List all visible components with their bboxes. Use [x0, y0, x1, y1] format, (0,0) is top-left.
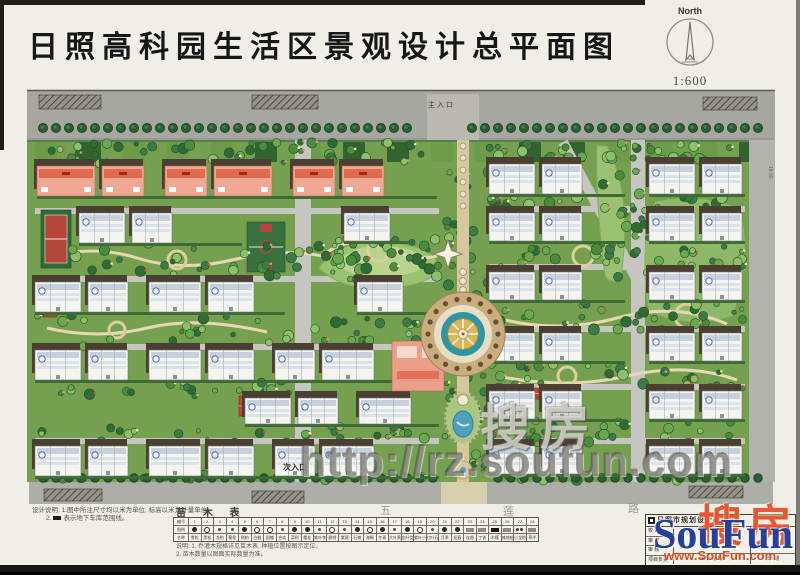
plant-table-column: 19紫叶小檗	[414, 518, 427, 541]
plant-table-cell	[202, 526, 214, 534]
road-name-char: 五	[380, 502, 391, 518]
scanned-plan-sheet: 日照高科园生活区景观设计总平面图 North 1:600 18.00 主入口 次…	[0, 0, 800, 575]
plant-table-cell: 大叶黄杨	[389, 534, 401, 541]
plant-symbol-icon	[204, 527, 210, 533]
plant-table-cell: 蜀桧	[227, 534, 239, 541]
plant-table-column: 15海桐	[364, 518, 377, 541]
plant-table-column: 10樱花	[302, 518, 315, 541]
plant-table-column: 24丁香	[477, 518, 490, 541]
plant-table-cell: 8	[277, 518, 289, 526]
plant-table-cell: 红叶石楠	[427, 534, 439, 541]
plant-table-cell: 25	[489, 518, 501, 526]
plant-table-column: 7国槐	[264, 518, 277, 541]
plant-symbol-icon	[367, 527, 373, 533]
plant-table-cell	[314, 526, 326, 534]
plant-table-cell	[489, 526, 501, 534]
plant-table-cell: 15	[364, 518, 376, 526]
plant-table-cell: 栾树	[289, 534, 301, 541]
plant-table-cell: 27	[514, 518, 526, 526]
plant-table-cell: 侧柏	[239, 534, 251, 541]
plant-table-cell: 白蜡	[252, 534, 264, 541]
plant-table-column: 21月季	[439, 518, 452, 541]
residential-building-row	[32, 275, 285, 315]
plant-table-cell: 紫薇	[339, 534, 351, 541]
plant-table-notes: 说明: 1. 乔灌木规格详见苗木表, 种植位置按图示定位。 2. 苗木数量以图面…	[176, 544, 321, 559]
plant-table-cell: 紫叶李	[314, 534, 326, 541]
plant-symbol-icon	[466, 528, 474, 532]
plant-symbol-icon	[267, 527, 273, 533]
plant-table-column: 28草坪	[527, 518, 539, 541]
plant-table-column: 6白蜡	[252, 518, 265, 541]
road-name-char: 路	[628, 500, 639, 516]
plant-table-column: 3龙柏	[214, 518, 227, 541]
plant-table-cell: 石楠	[352, 534, 364, 541]
plant-table-cell	[389, 526, 401, 534]
plant-symbol-icon	[343, 528, 346, 531]
plant-symbol-icon	[455, 527, 460, 532]
plant-symbol-icon	[405, 527, 410, 532]
plant-table-cell: 雪松	[189, 534, 201, 541]
scale-label: 1:600	[658, 73, 722, 89]
plant-table-cell: 草坪	[527, 534, 539, 541]
plant-symbol-icon	[292, 527, 297, 532]
plant-table-cell: 6	[252, 518, 264, 526]
plant-table-cell	[302, 526, 314, 534]
plant-table-cell: 20	[427, 518, 439, 526]
plant-table-cell: 11	[314, 518, 326, 526]
plant-table-cell: 碧桃	[327, 534, 339, 541]
plant-table-cell: 迎春	[452, 534, 464, 541]
plant-table-column: 1雪松	[189, 518, 202, 541]
plant-table-cell	[414, 526, 426, 534]
plant-table-cell	[439, 526, 451, 534]
plant-table-cell	[527, 526, 539, 534]
plant-symbol-icon	[417, 527, 423, 533]
plant-table-cell: 金叶女贞	[402, 534, 414, 541]
plant-table-cell	[452, 526, 464, 534]
plant-table-cell: 17	[389, 518, 401, 526]
plant-symbol-icon	[242, 527, 247, 532]
plant-table-cell: 龙柏	[214, 534, 226, 541]
plant-table-cell: 23	[464, 518, 476, 526]
plant-table-column: 26铺地柏	[502, 518, 515, 541]
plant-table-cell	[502, 526, 514, 534]
plant-table-cell: 木槿	[489, 534, 501, 541]
plant-table-cell: 16	[377, 518, 389, 526]
plant-table-cell	[239, 526, 251, 534]
central-plaza	[421, 292, 505, 376]
plant-symbol-icon	[305, 527, 310, 532]
plant-table-column: 20红叶石楠	[427, 518, 440, 541]
plant-table-cell	[227, 526, 239, 534]
edge-dimension-label: 18.00	[767, 166, 773, 179]
plant-symbol-icon	[491, 528, 499, 532]
plant-table-cell: 编号	[174, 518, 188, 526]
plant-table-cell	[427, 526, 439, 534]
road-name-char: 莲	[503, 503, 514, 519]
plant-table-cell: 4	[227, 518, 239, 526]
plant-table-cell: 小龙柏	[514, 534, 526, 541]
plant-table-cell	[477, 526, 489, 534]
plant-table-column: 14石楠	[352, 518, 365, 541]
plant-table-cell: 合欢	[277, 534, 289, 541]
soufun-logo-site: www.SouFun.com	[664, 548, 776, 563]
plant-symbol-icon	[231, 528, 234, 531]
plant-table-cell: 18	[402, 518, 414, 526]
plant-table-column: 9栾树	[289, 518, 302, 541]
plant-table-cell: 12	[327, 518, 339, 526]
main-entrance-label: 主入口	[428, 100, 455, 110]
plant-symbol-icon	[503, 528, 511, 532]
plant-table-cell: 图例	[174, 526, 188, 534]
plant-symbol-icon	[355, 527, 360, 532]
plant-table-cell: 樱花	[302, 534, 314, 541]
plant-table-cell: 2	[202, 518, 214, 526]
plant-symbol-icon	[318, 528, 321, 531]
plant-table-column: 27小龙柏	[514, 518, 527, 541]
plant-symbol-icon	[528, 528, 536, 532]
plant-table-cell: 连翘	[464, 534, 476, 541]
plant-table-column: 16冬青	[377, 518, 390, 541]
plant-table-cell: 28	[527, 518, 539, 526]
plant-table-cell: 黑松	[202, 534, 214, 541]
plant-symbol-icon	[478, 528, 486, 532]
north-label: North	[658, 6, 722, 16]
plant-table-column: 2黑松	[202, 518, 215, 541]
plant-table-cell: 10	[302, 518, 314, 526]
north-arrow-icon	[658, 16, 722, 68]
plant-symbol-icon	[218, 528, 221, 531]
plant-table-cell	[264, 526, 276, 534]
plant-table-cell	[514, 526, 526, 534]
scan-border	[0, 0, 645, 5]
plant-table-cell	[402, 526, 414, 534]
plant-table-column: 13紫薇	[339, 518, 352, 541]
plant-table-cell: 冬青	[377, 534, 389, 541]
plant-table-cell: 14	[352, 518, 364, 526]
scan-border	[796, 0, 800, 575]
plant-table-cell	[464, 526, 476, 534]
plant-table-cell	[289, 526, 301, 534]
plant-table-column: 18金叶女贞	[402, 518, 415, 541]
plant-symbol-icon	[281, 528, 284, 531]
plant-table-cell: 3	[214, 518, 226, 526]
plant-table-column: 8合欢	[277, 518, 290, 541]
plant-note-line: 2. 苗木数量以图面实际数量为准。	[176, 552, 321, 560]
plant-table-cell: 9	[289, 518, 301, 526]
plant-table-column: 编号图例名称	[174, 518, 189, 541]
plant-table-cell: 22	[452, 518, 464, 526]
plant-symbol-icon	[192, 527, 197, 532]
plant-table-cell	[214, 526, 226, 534]
plant-table-cell: 1	[189, 518, 201, 526]
plant-note-line: 说明: 1. 乔灌木规格详见苗木表, 种植位置按图示定位。	[176, 544, 321, 552]
plant-table-cell: 7	[264, 518, 276, 526]
plant-table-cell: 19	[414, 518, 426, 526]
plant-table-cell	[189, 526, 201, 534]
plant-symbol-icon	[516, 528, 519, 531]
plant-symbol-icon	[254, 527, 260, 533]
plant-table-cell: 丁香	[477, 534, 489, 541]
plant-table-column: 22迎春	[452, 518, 465, 541]
plant-table-cell: 5	[239, 518, 251, 526]
plant-table-cell: 紫叶小檗	[414, 534, 426, 541]
plant-table-cell: 名称	[174, 534, 188, 541]
plant-table-cell	[364, 526, 376, 534]
plant-symbol-icon	[380, 527, 385, 532]
plant-table-cell	[339, 526, 351, 534]
plant-symbol-icon	[329, 527, 335, 533]
plant-table-cell	[277, 526, 289, 534]
plant-symbol-icon	[393, 528, 396, 531]
page-title: 日照高科园生活区景观设计总平面图	[28, 22, 620, 66]
plant-table-column: 5侧柏	[239, 518, 252, 541]
plant-symbol-icon	[442, 527, 447, 532]
plant-table-cell: 国槐	[264, 534, 276, 541]
plant-table-cell: 21	[439, 518, 451, 526]
plant-table-column: 25木槿	[489, 518, 502, 541]
plant-table-cell: 海桐	[364, 534, 376, 541]
plant-table-cell	[352, 526, 364, 534]
plant-table-cell: 26	[502, 518, 514, 526]
plant-table-column: 23连翘	[464, 518, 477, 541]
north-arrow: North 1:600	[658, 6, 722, 89]
plant-table-column: 17大叶黄杨	[389, 518, 402, 541]
plant-table-column: 11紫叶李	[314, 518, 327, 541]
plant-table-cell: 月季	[439, 534, 451, 541]
plant-table: 编号图例名称1雪松2黑松3龙柏4蜀桧5侧柏6白蜡7国槐8合欢9栾树10樱花11紫…	[173, 517, 539, 542]
plant-table-cell: 13	[339, 518, 351, 526]
plant-table-cell	[252, 526, 264, 534]
plant-table-cell: 铺地柏	[502, 534, 514, 541]
plant-table-cell	[327, 526, 339, 534]
plant-symbol-icon	[431, 528, 434, 531]
water-feature	[446, 393, 480, 443]
plant-table-column: 4蜀桧	[227, 518, 240, 541]
plant-table-cell	[377, 526, 389, 534]
legend-swatch	[53, 516, 61, 520]
plant-table-cell: 24	[477, 518, 489, 526]
scan-border	[0, 0, 4, 150]
soufun-watermark-url: http://rz.soufun.com	[300, 438, 733, 487]
plant-table-column: 12碧桃	[327, 518, 340, 541]
